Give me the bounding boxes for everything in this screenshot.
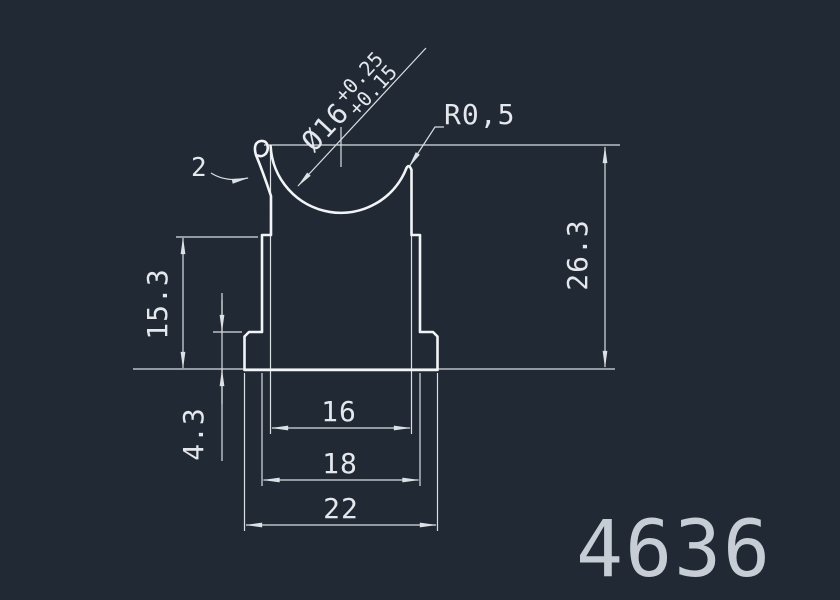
dim-total-height-label: 26.3 <box>561 219 594 290</box>
dim-body-width-label: 18 <box>322 447 358 480</box>
dim-base-width-label: 22 <box>323 492 359 525</box>
part-number: 4636 <box>576 505 772 595</box>
lip-thickness-label: 2 <box>191 153 208 183</box>
dim-groove-width-label: 16 <box>321 395 357 428</box>
dim-body-height-label: 15.3 <box>141 268 174 339</box>
cad-drawing-canvas: Ø16 +0.25 +0.15 R0,5 2 26.3 15.3 4.3 16 … <box>0 0 840 600</box>
dim-base-height-label: 4.3 <box>177 407 210 461</box>
radius-callout-label: R0,5 <box>444 98 515 131</box>
